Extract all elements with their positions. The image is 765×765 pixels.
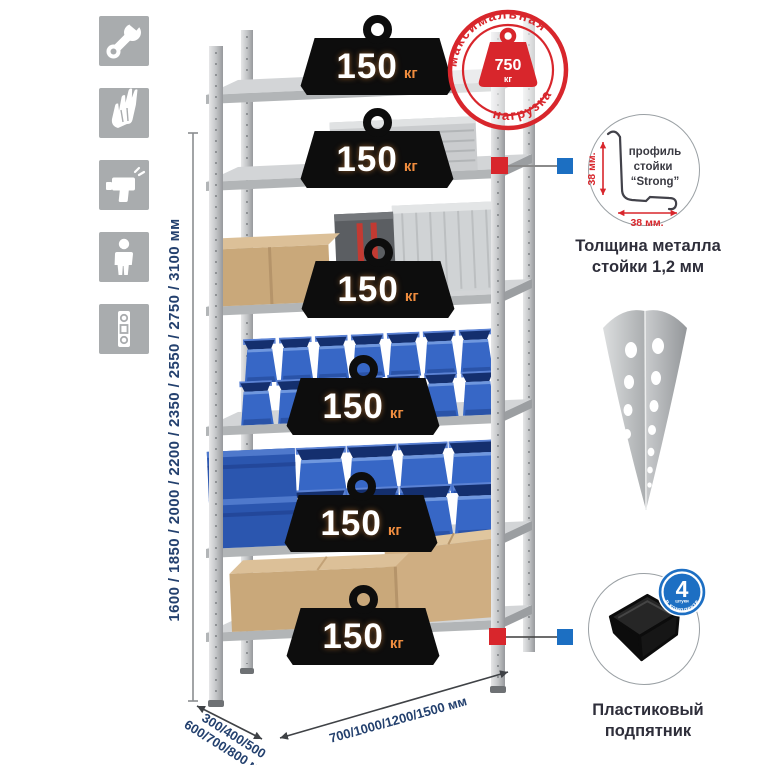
profile-caption-line1: Толщина металла	[575, 237, 721, 255]
weight-badge-unit: кг	[388, 522, 402, 539]
height-options-label: 1600 / 1850 / 2000 / 2200 / 2350 / 2550 …	[166, 140, 188, 700]
spirit-level-icon	[99, 304, 149, 354]
foot-count-badge: 4 штуки в комплекте	[656, 566, 708, 623]
product-infographic: 1600 / 1850 / 2000 / 2200 / 2350 / 2550 …	[0, 0, 765, 765]
weight-badge-value: 150	[322, 387, 383, 427]
weight-handle-icon	[363, 108, 392, 137]
max-load-stamp: максимальная нагрузка 750 кг	[443, 5, 573, 135]
weight-badge-unit: кг	[390, 405, 404, 422]
profile-caption: Толщина металла стойки 1,2 мм	[568, 236, 728, 278]
weight-handle-icon	[363, 15, 392, 44]
profile-caption-line2: стойки 1,2 мм	[592, 258, 704, 276]
drill-icon	[99, 160, 149, 210]
weight-handle-icon	[364, 238, 393, 267]
weight-badge-value: 150	[336, 140, 397, 180]
profile-label-line1: профиль	[629, 146, 682, 158]
weight-badge-value: 150	[320, 504, 381, 544]
weight-badge-shelf3: 150кг	[300, 238, 456, 318]
weight-handle-icon	[349, 355, 378, 384]
weight-handle-icon	[347, 472, 376, 501]
icon-tile	[99, 232, 149, 282]
gloves-icon	[99, 88, 149, 138]
icon-tile	[99, 88, 149, 138]
foot-caption-line2: подпятник	[605, 722, 691, 740]
weight-badge-value: 150	[337, 270, 398, 310]
icon-tile	[99, 304, 149, 354]
profile-label-line3: “Strong”	[631, 176, 680, 188]
angle-post-image	[595, 298, 695, 527]
foot-caption-line1: Пластиковый	[592, 701, 703, 719]
foot-caption: Пластиковый подпятник	[568, 700, 728, 742]
weight-badge-unit: кг	[404, 65, 418, 82]
icon-tile	[99, 16, 149, 66]
profile-drawing: 38 мм. 38 мм. профиль стойки “Strong”	[589, 115, 698, 233]
height-dimension-line	[188, 133, 198, 701]
red-marker-square	[491, 157, 508, 174]
weight-badge-unit: кг	[404, 158, 418, 175]
weight-badge-value: 150	[336, 47, 397, 87]
blue-marker-square	[557, 158, 573, 174]
blue-marker-square	[557, 629, 573, 645]
profile-vertical-dim: 38 мм.	[586, 152, 598, 185]
profile-label-line2: стойки	[634, 161, 673, 173]
weight-badge-shelf4: 150кг	[285, 355, 441, 435]
wrench-icon	[99, 16, 149, 66]
stamp-weight-value: 750	[495, 57, 522, 74]
profile-horizontal-dim: 38 мм.	[630, 217, 663, 229]
foot-count-sub: штуки	[675, 599, 689, 604]
weight-badge-shelf6: 150кг	[285, 585, 441, 665]
weight-badge-shelf5: 150кг	[283, 472, 439, 552]
icon-tile	[99, 160, 149, 210]
weight-handle-icon	[349, 585, 378, 614]
stamp-weight-unit: кг	[504, 74, 513, 84]
weight-badge-unit: кг	[405, 288, 419, 305]
weight-badge-shelf2: 150кг	[299, 108, 455, 188]
red-marker-square	[489, 628, 506, 645]
weight-badge-unit: кг	[390, 635, 404, 652]
weight-badge-shelf1: 150кг	[299, 15, 455, 95]
weight-badge-value: 150	[322, 617, 383, 657]
person-icon	[99, 232, 149, 282]
post-profile-circle: 38 мм. 38 мм. профиль стойки “Strong”	[588, 114, 700, 226]
